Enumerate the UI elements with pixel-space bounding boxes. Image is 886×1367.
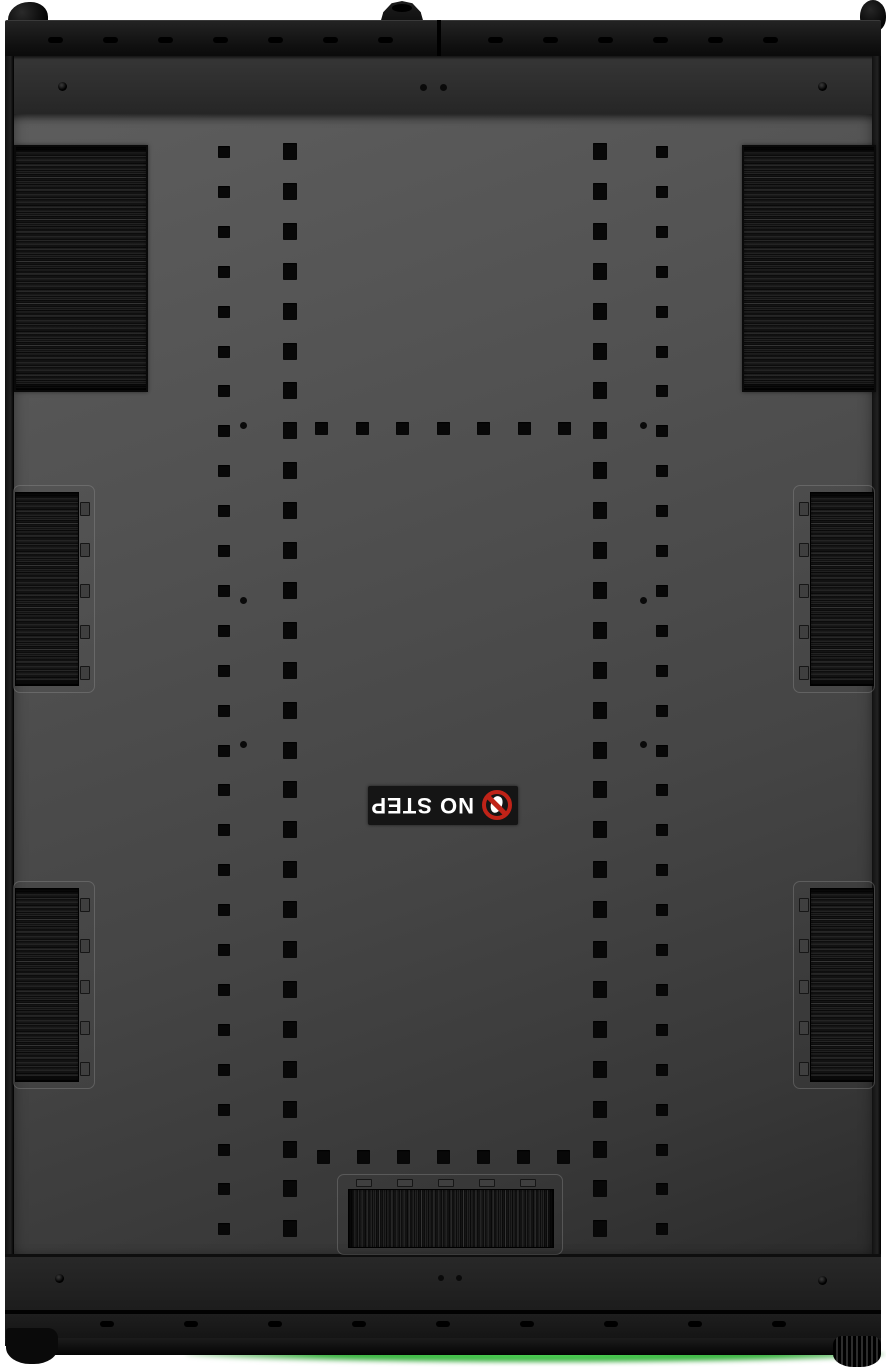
roof-top-bar-split-seam xyxy=(437,20,441,56)
brush-clip xyxy=(80,939,90,953)
square-mounting-hole xyxy=(593,742,607,759)
square-mounting-hole xyxy=(283,542,297,559)
no-step-prohibition-icon xyxy=(482,791,512,821)
square-mounting-hole xyxy=(218,585,230,597)
square-mounting-hole xyxy=(593,702,607,719)
square-mounting-hole xyxy=(656,146,668,158)
square-mounting-hole xyxy=(218,505,230,517)
square-mounting-hole xyxy=(558,422,571,435)
square-mounting-hole xyxy=(283,343,297,360)
square-mounting-hole xyxy=(283,1101,297,1118)
square-mounting-hole xyxy=(283,1220,297,1237)
rack-roof-top-view: NO STEP xyxy=(0,0,886,1367)
round-pilot-hole xyxy=(640,597,647,604)
round-fastener-hole xyxy=(58,82,67,91)
square-mounting-hole xyxy=(218,266,230,278)
brush-clip xyxy=(799,1062,809,1076)
brush-clip xyxy=(520,1179,536,1187)
roof-vent-slot-top xyxy=(543,37,558,43)
brush-strip xyxy=(15,492,79,686)
square-mounting-hole xyxy=(218,665,230,677)
square-mounting-hole xyxy=(218,1064,230,1076)
square-mounting-hole xyxy=(283,143,297,160)
square-mounting-hole xyxy=(593,343,607,360)
side-cable-brush-left xyxy=(13,881,95,1089)
brush-clip xyxy=(799,584,809,598)
roof-vent-slot-bottom xyxy=(100,1321,114,1327)
roof-vent-slot-bottom xyxy=(520,1321,534,1327)
round-pilot-hole xyxy=(456,1275,462,1281)
square-mounting-hole xyxy=(593,781,607,798)
square-mounting-hole xyxy=(593,861,607,878)
roof-vent-slot-top xyxy=(48,37,63,43)
bottom-cable-brush xyxy=(337,1174,563,1255)
no-step-text: NO STEP xyxy=(370,793,474,819)
square-mounting-hole xyxy=(477,422,490,435)
brush-clip xyxy=(799,502,809,516)
roof-vent-slot-top xyxy=(268,37,283,43)
square-mounting-hole xyxy=(518,422,531,435)
square-mounting-hole xyxy=(656,904,668,916)
square-mounting-hole xyxy=(317,1150,330,1164)
square-mounting-hole xyxy=(218,705,230,717)
square-mounting-hole xyxy=(218,984,230,996)
square-mounting-hole xyxy=(656,226,668,238)
square-mounting-hole xyxy=(396,422,409,435)
square-mounting-hole xyxy=(283,1141,297,1158)
brush-clip xyxy=(799,625,809,639)
roof-lower-frame-band xyxy=(5,1254,881,1313)
square-mounting-hole xyxy=(656,705,668,717)
square-mounting-hole xyxy=(218,625,230,637)
square-mounting-hole xyxy=(557,1150,570,1164)
square-mounting-hole xyxy=(593,223,607,240)
rack-bottom-edge xyxy=(5,1338,881,1355)
leveling-foot-left xyxy=(6,1328,58,1364)
square-mounting-hole xyxy=(283,183,297,200)
square-mounting-hole xyxy=(593,662,607,679)
round-fastener-hole xyxy=(55,1274,64,1283)
square-mounting-hole xyxy=(593,502,607,519)
brush-clip xyxy=(80,1021,90,1035)
square-mounting-hole xyxy=(218,425,230,437)
square-mounting-hole xyxy=(283,1021,297,1038)
square-mounting-hole xyxy=(656,1064,668,1076)
brush-strip xyxy=(810,492,874,686)
round-pilot-hole xyxy=(640,422,647,429)
brush-clip xyxy=(799,939,809,953)
square-mounting-hole xyxy=(218,1144,230,1156)
square-mounting-hole xyxy=(593,263,607,280)
side-cable-brush-left xyxy=(13,485,95,693)
square-mounting-hole xyxy=(357,1150,370,1164)
square-mounting-hole xyxy=(656,665,668,677)
square-mounting-hole xyxy=(593,821,607,838)
roof-vent-slot-top xyxy=(213,37,228,43)
square-mounting-hole xyxy=(437,1150,450,1164)
square-mounting-hole xyxy=(283,303,297,320)
square-mounting-hole xyxy=(593,382,607,399)
roof-vent-slot-top xyxy=(158,37,173,43)
square-mounting-hole xyxy=(593,462,607,479)
square-mounting-hole xyxy=(283,1180,297,1197)
brush-clip xyxy=(80,625,90,639)
square-mounting-hole xyxy=(283,941,297,958)
roof-vent-slot-bottom xyxy=(184,1321,198,1327)
square-mounting-hole xyxy=(593,582,607,599)
square-mounting-hole xyxy=(283,662,297,679)
square-mounting-hole xyxy=(218,1104,230,1116)
square-mounting-hole xyxy=(656,505,668,517)
roof-vent-slot-top xyxy=(708,37,723,43)
square-mounting-hole xyxy=(656,346,668,358)
roof-vent-slot-bottom xyxy=(352,1321,366,1327)
round-pilot-hole xyxy=(440,84,447,91)
roof-vent-slot-bottom xyxy=(436,1321,450,1327)
square-mounting-hole xyxy=(656,385,668,397)
brush-clip xyxy=(80,980,90,994)
round-pilot-hole xyxy=(640,741,647,748)
no-step-label: NO STEP xyxy=(368,786,518,825)
roof-top-edge-bar xyxy=(5,20,881,57)
square-mounting-hole xyxy=(656,306,668,318)
cable-entry-brush-top-right xyxy=(742,145,876,392)
square-mounting-hole xyxy=(218,944,230,956)
square-mounting-hole xyxy=(283,382,297,399)
square-mounting-hole xyxy=(656,545,668,557)
brush-clip xyxy=(799,1021,809,1035)
round-pilot-hole xyxy=(420,84,427,91)
square-mounting-hole xyxy=(593,941,607,958)
round-fastener-hole xyxy=(818,82,827,91)
square-mounting-hole xyxy=(397,1150,410,1164)
square-mounting-hole xyxy=(593,542,607,559)
square-mounting-hole xyxy=(593,1021,607,1038)
brush-clip xyxy=(80,543,90,557)
round-pilot-hole xyxy=(240,597,247,604)
square-mounting-hole xyxy=(283,901,297,918)
roof-vent-slot-top xyxy=(378,37,393,43)
roof-vent-slot-bottom xyxy=(268,1321,282,1327)
cable-entry-brush-top-left xyxy=(14,145,148,392)
brush-clip xyxy=(356,1179,372,1187)
roof-vent-slot-top xyxy=(103,37,118,43)
square-mounting-hole xyxy=(593,183,607,200)
square-mounting-hole xyxy=(218,306,230,318)
square-mounting-hole xyxy=(218,186,230,198)
brush-clip xyxy=(80,1062,90,1076)
square-mounting-hole xyxy=(656,944,668,956)
square-mounting-hole xyxy=(593,143,607,160)
square-mounting-hole xyxy=(656,784,668,796)
caster-right xyxy=(833,1336,881,1367)
square-mounting-hole xyxy=(593,422,607,439)
square-mounting-hole xyxy=(218,1024,230,1036)
square-mounting-hole xyxy=(593,1180,607,1197)
brush-strip xyxy=(348,1189,554,1248)
square-mounting-hole xyxy=(218,385,230,397)
roof-vent-slot-bottom xyxy=(688,1321,702,1327)
square-mounting-hole xyxy=(656,864,668,876)
brush-clip xyxy=(799,666,809,680)
square-mounting-hole xyxy=(218,146,230,158)
square-mounting-hole xyxy=(283,263,297,280)
square-mounting-hole xyxy=(218,864,230,876)
square-mounting-hole xyxy=(477,1150,490,1164)
square-mounting-hole xyxy=(593,303,607,320)
square-mounting-hole xyxy=(218,784,230,796)
square-mounting-hole xyxy=(656,1024,668,1036)
square-mounting-hole xyxy=(283,462,297,479)
square-mounting-hole xyxy=(218,904,230,916)
square-mounting-hole xyxy=(437,422,450,435)
brush-clip xyxy=(80,502,90,516)
brush-clip xyxy=(479,1179,495,1187)
square-mounting-hole xyxy=(593,1220,607,1237)
round-pilot-hole xyxy=(240,422,247,429)
square-mounting-hole xyxy=(283,582,297,599)
square-mounting-hole xyxy=(656,824,668,836)
square-mounting-hole xyxy=(315,422,328,435)
square-mounting-hole xyxy=(656,425,668,437)
square-mounting-hole xyxy=(283,702,297,719)
square-mounting-hole xyxy=(656,745,668,757)
round-pilot-hole xyxy=(438,1275,444,1281)
square-mounting-hole xyxy=(656,1183,668,1195)
brush-clip xyxy=(799,898,809,912)
roof-vent-slot-top xyxy=(488,37,503,43)
square-mounting-hole xyxy=(283,861,297,878)
square-mounting-hole xyxy=(656,465,668,477)
side-cable-brush-right xyxy=(793,881,875,1089)
side-cable-brush-right xyxy=(793,485,875,693)
square-mounting-hole xyxy=(283,742,297,759)
square-mounting-hole xyxy=(218,226,230,238)
square-mounting-hole xyxy=(656,585,668,597)
brush-clip xyxy=(397,1179,413,1187)
roof-vent-slot-top xyxy=(323,37,338,43)
square-mounting-hole xyxy=(218,745,230,757)
square-mounting-hole xyxy=(283,502,297,519)
square-mounting-hole xyxy=(218,824,230,836)
square-mounting-hole xyxy=(656,186,668,198)
square-mounting-hole xyxy=(656,1144,668,1156)
square-mounting-hole xyxy=(656,1104,668,1116)
square-mounting-hole xyxy=(656,984,668,996)
brush-strip xyxy=(810,888,874,1082)
square-mounting-hole xyxy=(283,622,297,639)
square-mounting-hole xyxy=(283,821,297,838)
square-mounting-hole xyxy=(218,346,230,358)
square-mounting-hole xyxy=(656,1223,668,1235)
square-mounting-hole xyxy=(593,622,607,639)
brush-clip xyxy=(80,584,90,598)
round-pilot-hole xyxy=(240,741,247,748)
square-mounting-hole xyxy=(283,223,297,240)
roof-vent-slot-top xyxy=(598,37,613,43)
round-fastener-hole xyxy=(818,1276,827,1285)
square-mounting-hole xyxy=(218,1183,230,1195)
roof-vent-slot-bottom xyxy=(604,1321,618,1327)
square-mounting-hole xyxy=(218,465,230,477)
square-mounting-hole xyxy=(356,422,369,435)
square-mounting-hole xyxy=(593,1141,607,1158)
square-mounting-hole xyxy=(283,422,297,439)
square-mounting-hole xyxy=(656,266,668,278)
square-mounting-hole xyxy=(218,1223,230,1235)
square-mounting-hole xyxy=(218,545,230,557)
square-mounting-hole xyxy=(593,981,607,998)
brush-clip xyxy=(438,1179,454,1187)
brush-clip xyxy=(80,898,90,912)
square-mounting-hole xyxy=(283,1061,297,1078)
square-mounting-hole xyxy=(283,981,297,998)
roof-vent-slot-bottom xyxy=(772,1321,786,1327)
square-mounting-hole xyxy=(656,625,668,637)
roof-vent-slot-top xyxy=(653,37,668,43)
square-mounting-hole xyxy=(517,1150,530,1164)
roof-vent-slot-top xyxy=(763,37,778,43)
square-mounting-hole xyxy=(593,901,607,918)
brush-clip xyxy=(799,980,809,994)
square-mounting-hole xyxy=(593,1061,607,1078)
brush-clip xyxy=(799,543,809,557)
brush-clip xyxy=(80,666,90,680)
square-mounting-hole xyxy=(593,1101,607,1118)
square-mounting-hole xyxy=(283,781,297,798)
brush-strip xyxy=(15,888,79,1082)
